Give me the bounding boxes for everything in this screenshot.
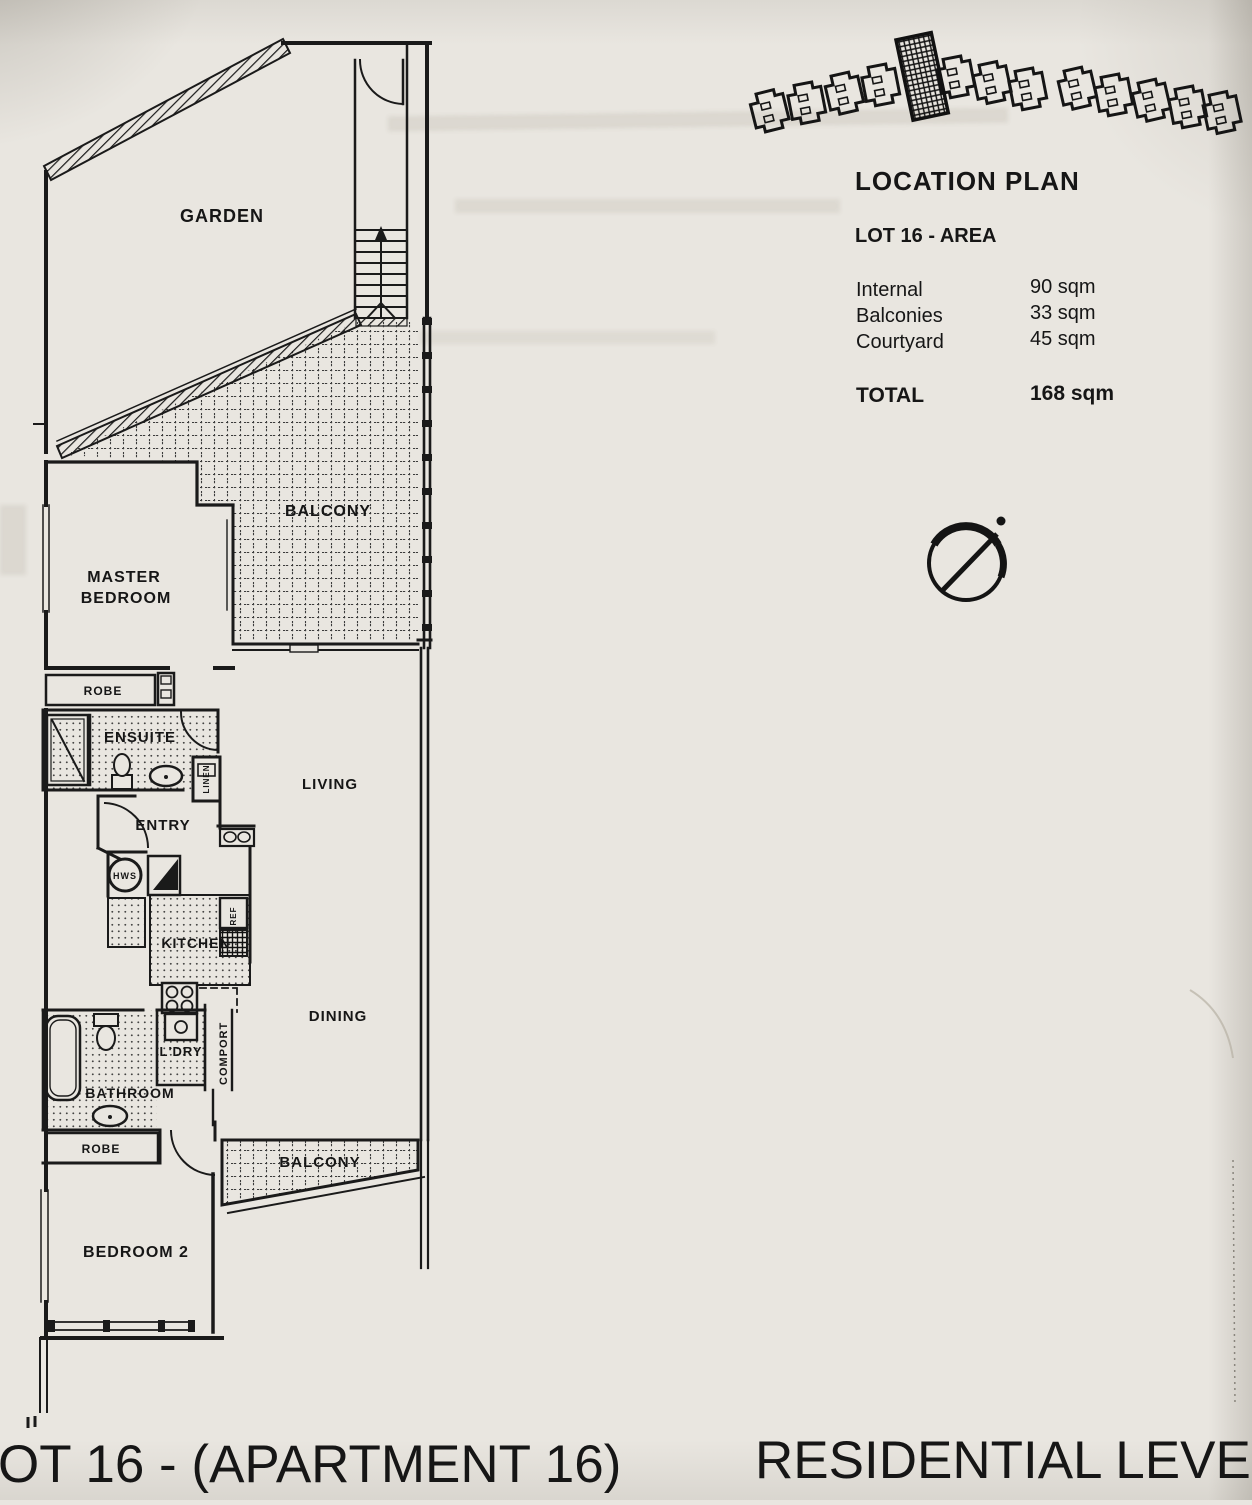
caption-lot-apartment: OT 16 - (APARTMENT 16) [0, 1435, 621, 1494]
info-panel: LOCATION PLAN LOT 16 - AREA Internal 90 … [855, 166, 1114, 407]
area-total-label: TOTAL [856, 384, 924, 407]
room-label-master-2: BEDROOM [81, 590, 172, 607]
living-window-wall [418, 640, 431, 1268]
page-edge-artifacts [28, 990, 1235, 1428]
room-label-balcony-upper: BALCONY [285, 503, 371, 520]
scanned-page: GARDEN BALCONY MASTER BEDROOM ROBE ENSUI… [0, 0, 1252, 1500]
kitchen-sink [218, 826, 254, 846]
room-label-entry: ENTRY [135, 817, 190, 834]
bathroom-laundry-block [43, 1005, 232, 1130]
room-label-robe-2: ROBE [82, 1142, 121, 1156]
room-label-garden: GARDEN [180, 206, 264, 226]
bathtub [46, 1016, 80, 1100]
apartment-floor-plan [34, 39, 432, 1412]
garden-door-arc [360, 60, 403, 104]
room-label-living: LIVING [302, 776, 358, 793]
page-captions: OT 16 - (APARTMENT 16) RESIDENTIAL LEVEL… [0, 1431, 1252, 1494]
room-label-comport: COMPORT [218, 1022, 230, 1085]
room-label-linen: LINEN [202, 765, 211, 794]
room-label-laundry: L'DRY [160, 1044, 203, 1059]
floor-plan-document: GARDEN BALCONY MASTER BEDROOM ROBE ENSUI… [0, 0, 1252, 1500]
room-label-dining: DINING [309, 1008, 368, 1025]
stair-direction-arrow-icon [375, 226, 387, 240]
area-row-value: 45 sqm [1030, 328, 1096, 350]
room-label-robe-master: ROBE [84, 684, 123, 698]
bathroom-toilet [94, 1014, 118, 1050]
lot-area-subheading: LOT 16 - AREA [855, 225, 997, 247]
shower [47, 715, 90, 785]
area-row-label: Internal [856, 279, 923, 301]
room-label-hws: HWS [113, 871, 137, 881]
ensuite-toilet [112, 754, 132, 789]
area-table: Internal 90 sqm Balconies 33 sqm Courtya… [856, 276, 1114, 407]
area-total-value: 168 sqm [1030, 382, 1114, 405]
caption-residential-level: RESIDENTIAL LEVEL O [755, 1431, 1252, 1490]
area-row-label: Balconies [856, 305, 943, 327]
room-label-bathroom: BATHROOM [85, 1085, 174, 1101]
stairs [356, 226, 407, 326]
bathroom-basin [93, 1106, 127, 1126]
room-label-balcony-lower: BALCONY [279, 1154, 360, 1171]
room-label-bedroom2: BEDROOM 2 [83, 1244, 189, 1261]
highlighted-lot-unit [896, 33, 948, 121]
bedroom2-door-arc [171, 1131, 214, 1175]
ensuite-basin [150, 766, 182, 786]
laundry-tub [165, 1014, 197, 1040]
area-row-label: Courtyard [856, 331, 944, 353]
north-arrow-icon [929, 517, 1006, 601]
location-plan-heading: LOCATION PLAN [855, 166, 1080, 196]
room-label-ensuite: ENSUITE [104, 729, 176, 746]
corner-pantry [148, 856, 180, 895]
area-row-value: 90 sqm [1030, 276, 1096, 298]
area-row-value: 33 sqm [1030, 302, 1096, 324]
room-label-kitchen: KITCHEN [161, 935, 230, 951]
lower-balcony [222, 1140, 424, 1213]
room-label-ref: REF [229, 907, 238, 926]
room-label-master-1: MASTER [87, 569, 161, 586]
